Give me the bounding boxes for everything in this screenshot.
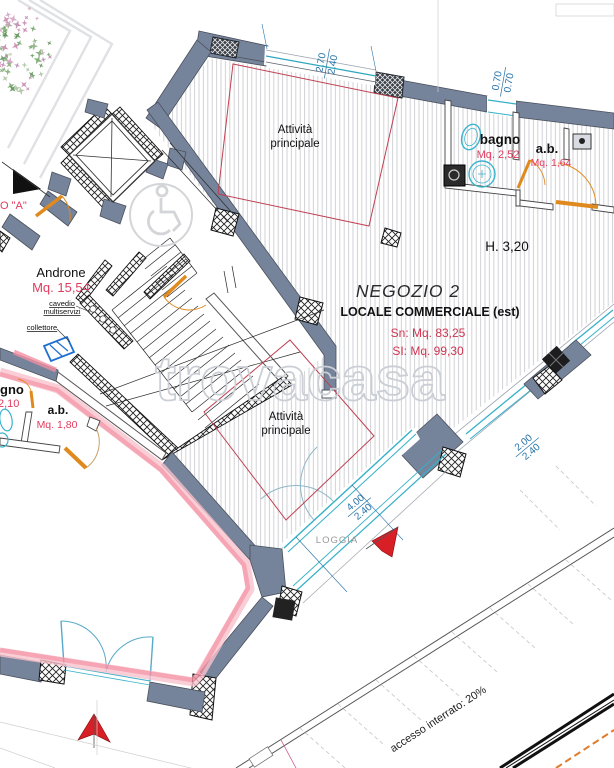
svg-text:Sn: Mq. 83,25: Sn: Mq. 83,25 (391, 326, 466, 340)
svg-text:LOGGIA: LOGGIA (316, 535, 358, 546)
svg-text:a.b.: a.b. (48, 403, 69, 417)
svg-text:H. 3,20: H. 3,20 (485, 239, 529, 254)
svg-text:bagno: bagno (480, 132, 521, 147)
svg-text:Mq. 15,54: Mq. 15,54 (32, 280, 90, 295)
svg-text:multiservizi: multiservizi (43, 307, 80, 316)
svg-text:principale: principale (261, 425, 310, 437)
svg-text:Androne: Androne (36, 265, 85, 280)
svg-text:Mq. 1,80: Mq. 1,80 (37, 419, 78, 431)
svg-text:NEGOZIO 2: NEGOZIO 2 (356, 281, 460, 301)
svg-text:O "A": O "A" (0, 200, 27, 212)
svg-text:2,10: 2,10 (0, 398, 19, 410)
svg-text:LOCALE COMMERCIALE (est): LOCALE COMMERCIALE (est) (340, 305, 519, 319)
svg-text:trovacasa: trovacasa (155, 345, 445, 414)
svg-text:Mq. 1,64: Mq. 1,64 (531, 157, 572, 169)
svg-text:Attività: Attività (278, 124, 313, 136)
svg-text:gno: gno (0, 382, 24, 397)
svg-text:Mq. 2,52: Mq. 2,52 (477, 149, 520, 161)
svg-text:a.b.: a.b. (536, 141, 558, 156)
svg-text:collettore: collettore (27, 323, 57, 332)
svg-text:principale: principale (270, 138, 319, 150)
